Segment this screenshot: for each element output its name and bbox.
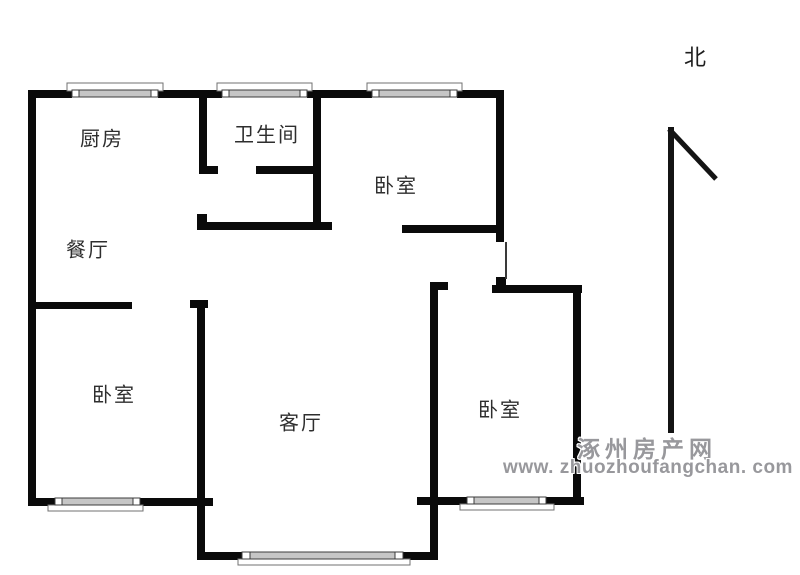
- wall-corridor-bottom: [197, 222, 332, 230]
- room-label-bedroom-north: 卧室: [374, 170, 418, 199]
- walls: [28, 90, 584, 560]
- wall-living-left: [197, 300, 205, 560]
- wall-bathroom-bottom-right: [256, 166, 321, 174]
- window-bathroom: [217, 82, 312, 99]
- wall-west-exterior: [28, 90, 36, 506]
- window-bedroom-west: [48, 497, 143, 513]
- entry-door-leaf: [505, 242, 507, 279]
- wall-bathroom-left: [199, 96, 207, 174]
- floor-plan-image: 厨房 卫生间 卧室 餐厅 卧室 客厅 卧室 北 涿州房产网 www. zhuoz…: [0, 0, 800, 575]
- room-label-living-room: 客厅: [279, 407, 323, 436]
- compass-north-label: 北: [684, 40, 706, 72]
- floor-plan-drawing: [0, 0, 800, 575]
- room-label-kitchen: 厨房: [80, 123, 124, 152]
- wall-bathroom-bottom-left-nub: [199, 166, 218, 174]
- wall-bathroom-right: [313, 96, 321, 230]
- room-label-bedroom-east: 卧室: [478, 394, 522, 423]
- wall-bedroom-west-top: [28, 302, 132, 309]
- wall-living-right: [430, 285, 438, 560]
- room-label-dining-room: 餐厅: [66, 234, 110, 263]
- wall-bedroom-north-bottom: [402, 225, 504, 233]
- window-bedroom-east: [460, 496, 554, 512]
- window-bedroom-north: [367, 82, 462, 99]
- north-arrow-icon: [669, 127, 716, 433]
- window-kitchen: [67, 82, 163, 99]
- watermark-site-url: www. zhuozhoufangchan. com: [503, 457, 793, 479]
- room-label-bedroom-west: 卧室: [92, 379, 136, 408]
- window-living: [238, 551, 410, 567]
- wall-east-exterior-upper: [496, 90, 504, 242]
- room-label-bathroom: 卫生间: [234, 119, 300, 148]
- wall-bedroom-east-top: [492, 285, 582, 293]
